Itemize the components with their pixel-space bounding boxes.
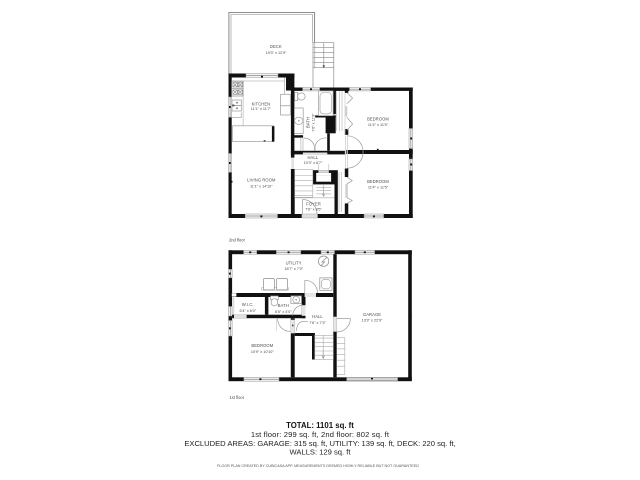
svg-text:7'6" x 11'9": 7'6" x 11'9" (312, 113, 316, 132)
svg-text:TOTAL: 1101 sq. ft: TOTAL: 1101 sq. ft (286, 421, 354, 430)
svg-text:10'3" x 6'7": 10'3" x 6'7" (304, 161, 323, 165)
svg-text:KITCHEN: KITCHEN (252, 101, 271, 106)
svg-text:GARAGE: GARAGE (363, 312, 381, 317)
svg-text:1st floor: 1st floor (230, 395, 245, 400)
svg-text:11'4" x 11'5": 11'4" x 11'5" (368, 185, 389, 189)
svg-text:DECK: DECK (270, 44, 282, 49)
svg-text:11'1" x 11'7": 11'1" x 11'7" (251, 107, 272, 111)
svg-text:7'6" x 8'5": 7'6" x 8'5" (305, 208, 322, 212)
svg-text:BEDROOM: BEDROOM (251, 343, 273, 348)
svg-text:EXCLUDED AREAS: GARAGE: 315 sq: EXCLUDED AREAS: GARAGE: 315 sq. ft, UTIL… (184, 439, 455, 448)
svg-text:6'5" x 4'0": 6'5" x 4'0" (275, 310, 292, 314)
svg-text:BEDROOM: BEDROOM (367, 117, 389, 122)
svg-text:11'1" x 14'10": 11'1" x 14'10" (250, 184, 273, 188)
svg-text:LIVING ROOM: LIVING ROOM (247, 177, 276, 182)
svg-text:BATH: BATH (306, 117, 311, 128)
svg-text:10'9" x 10'10": 10'9" x 10'10" (251, 350, 275, 354)
svg-text:FOYER: FOYER (306, 202, 321, 207)
svg-text:11'4" x 11'5": 11'4" x 11'5" (368, 123, 389, 127)
svg-text:HALL: HALL (312, 314, 323, 319)
svg-text:BATH: BATH (278, 303, 289, 308)
svg-text:19'3" x 12'9": 19'3" x 12'9" (266, 51, 287, 55)
svg-text:WALLS: 129 sq. ft: WALLS: 129 sq. ft (290, 448, 352, 457)
svg-text:FLOOR PLAN CREATED BY CUBICASA: FLOOR PLAN CREATED BY CUBICASA APP. MEAS… (217, 464, 419, 468)
svg-text:6'4" x 6'0": 6'4" x 6'0" (239, 309, 256, 313)
svg-text:2nd floor: 2nd floor (229, 237, 246, 242)
svg-text:BEDROOM: BEDROOM (367, 179, 389, 184)
svg-text:W.I.C.: W.I.C. (242, 302, 254, 307)
svg-text:1st floor: 299 sq. ft, 2nd flo: 1st floor: 299 sq. ft, 2nd floor: 802 sq… (251, 430, 390, 439)
svg-text:HALL: HALL (307, 155, 318, 160)
svg-text:7'6" x 7'3": 7'6" x 7'3" (309, 321, 326, 325)
svg-text:18'7" x 7'0": 18'7" x 7'0" (284, 267, 303, 271)
svg-text:13'3" x 22'9": 13'3" x 22'9" (362, 319, 383, 323)
svg-text:UTILITY: UTILITY (286, 261, 302, 266)
